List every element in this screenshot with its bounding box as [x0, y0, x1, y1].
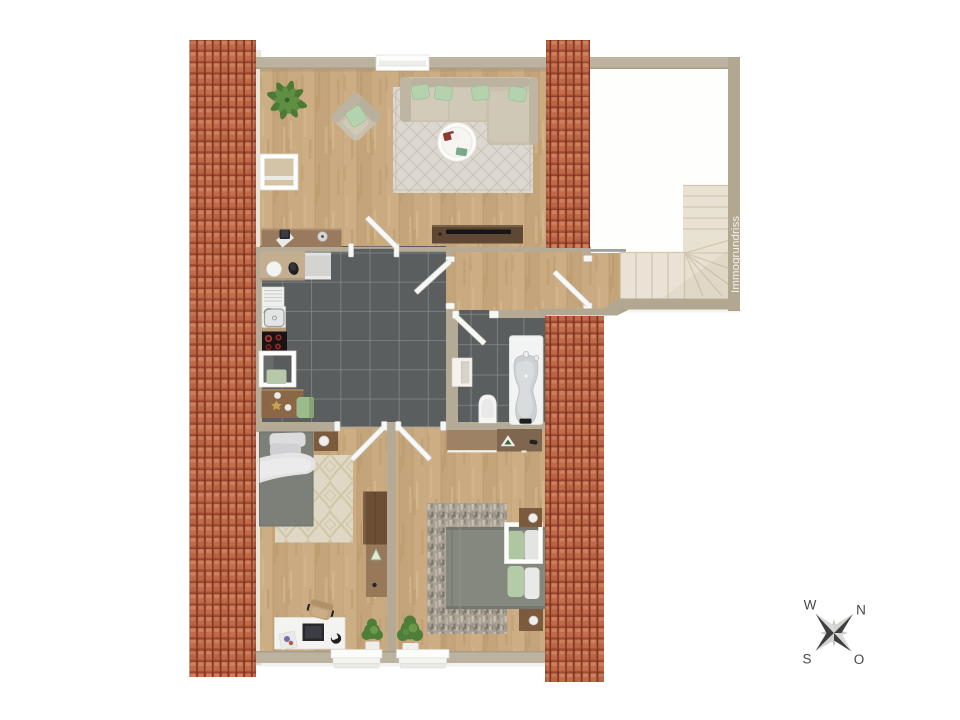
svg-text:Immogrundriss: Immogrundriss: [730, 216, 742, 293]
svg-text:N: N: [856, 603, 866, 618]
svg-text:O: O: [854, 652, 865, 667]
svg-text:W: W: [804, 598, 817, 613]
svg-text:S: S: [802, 652, 811, 667]
